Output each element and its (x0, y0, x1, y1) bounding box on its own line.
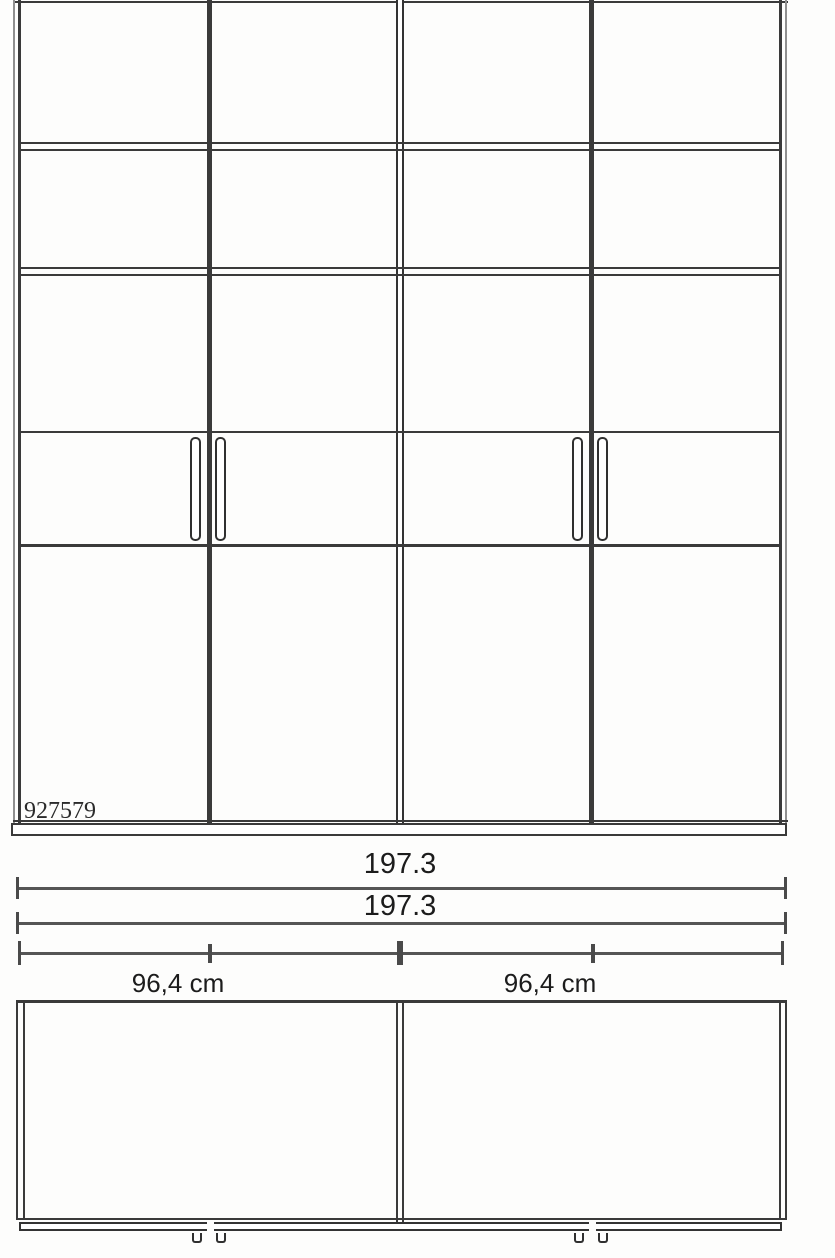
shelf-line-lower-top (21, 267, 779, 269)
dimension-label-total-bottom: 197.3 (330, 892, 470, 921)
wardrobe-technical-drawing: 927579 197.3 197.3 96,4 cm 96,4 cm (0, 0, 835, 1258)
base-plinth (11, 823, 787, 836)
shelf-line-upper-bottom (21, 149, 779, 151)
plan-right-wall-outer (785, 1000, 787, 1220)
plan-door-meeting-gap (207, 1220, 214, 1233)
dimension-label-left-section: 96,4 cm (98, 970, 258, 996)
plan-left-wall-outer (16, 1000, 18, 1220)
handle-zone-bottom-line (21, 544, 779, 547)
article-number: 927579 (24, 799, 96, 823)
right-panel-outer-line (785, 0, 787, 836)
door-bottom-line (13, 820, 788, 822)
left-panel-outer-line (13, 0, 15, 836)
dimension-tick (208, 944, 212, 963)
dimension-tick (784, 912, 787, 934)
door-handle (597, 437, 608, 541)
plan-front-edge-line (16, 1218, 787, 1220)
door-handle (190, 437, 201, 541)
door-divider-left (207, 0, 212, 836)
door-handle (572, 437, 583, 541)
plan-left-wall-inner (23, 1003, 25, 1218)
plan-door-handle (574, 1233, 584, 1243)
plan-door-handle (192, 1233, 202, 1243)
plan-door-handle (216, 1233, 226, 1243)
dimension-tick (16, 912, 19, 934)
plan-door-handle (598, 1233, 608, 1243)
dimension-tick (397, 941, 403, 965)
dimension-tick (18, 941, 21, 965)
dimension-label-right-section: 96,4 cm (470, 970, 630, 996)
door-divider-center (396, 0, 404, 836)
plan-center-divider-right-line (402, 1003, 404, 1222)
door-handle (215, 437, 226, 541)
handle-zone-top-line (21, 431, 779, 433)
shelf-line-lower-bottom (21, 274, 779, 276)
dimension-label-total-top: 197.3 (330, 850, 470, 879)
dimension-tick (591, 944, 595, 963)
door-divider-right (589, 0, 594, 836)
plan-door-meeting-gap (589, 1220, 596, 1233)
dimension-tick (784, 877, 787, 899)
shelf-line-upper-top (21, 142, 779, 144)
plan-center-divider-left-line (396, 1003, 398, 1222)
plan-door-front-band (19, 1222, 782, 1231)
right-panel-inner-line (779, 0, 782, 836)
dimension-line-total-bottom (16, 922, 787, 925)
left-panel-inner-line (18, 0, 21, 836)
plan-right-wall-inner (779, 1003, 781, 1218)
dimension-tick (781, 941, 784, 965)
dimension-tick (16, 877, 19, 899)
